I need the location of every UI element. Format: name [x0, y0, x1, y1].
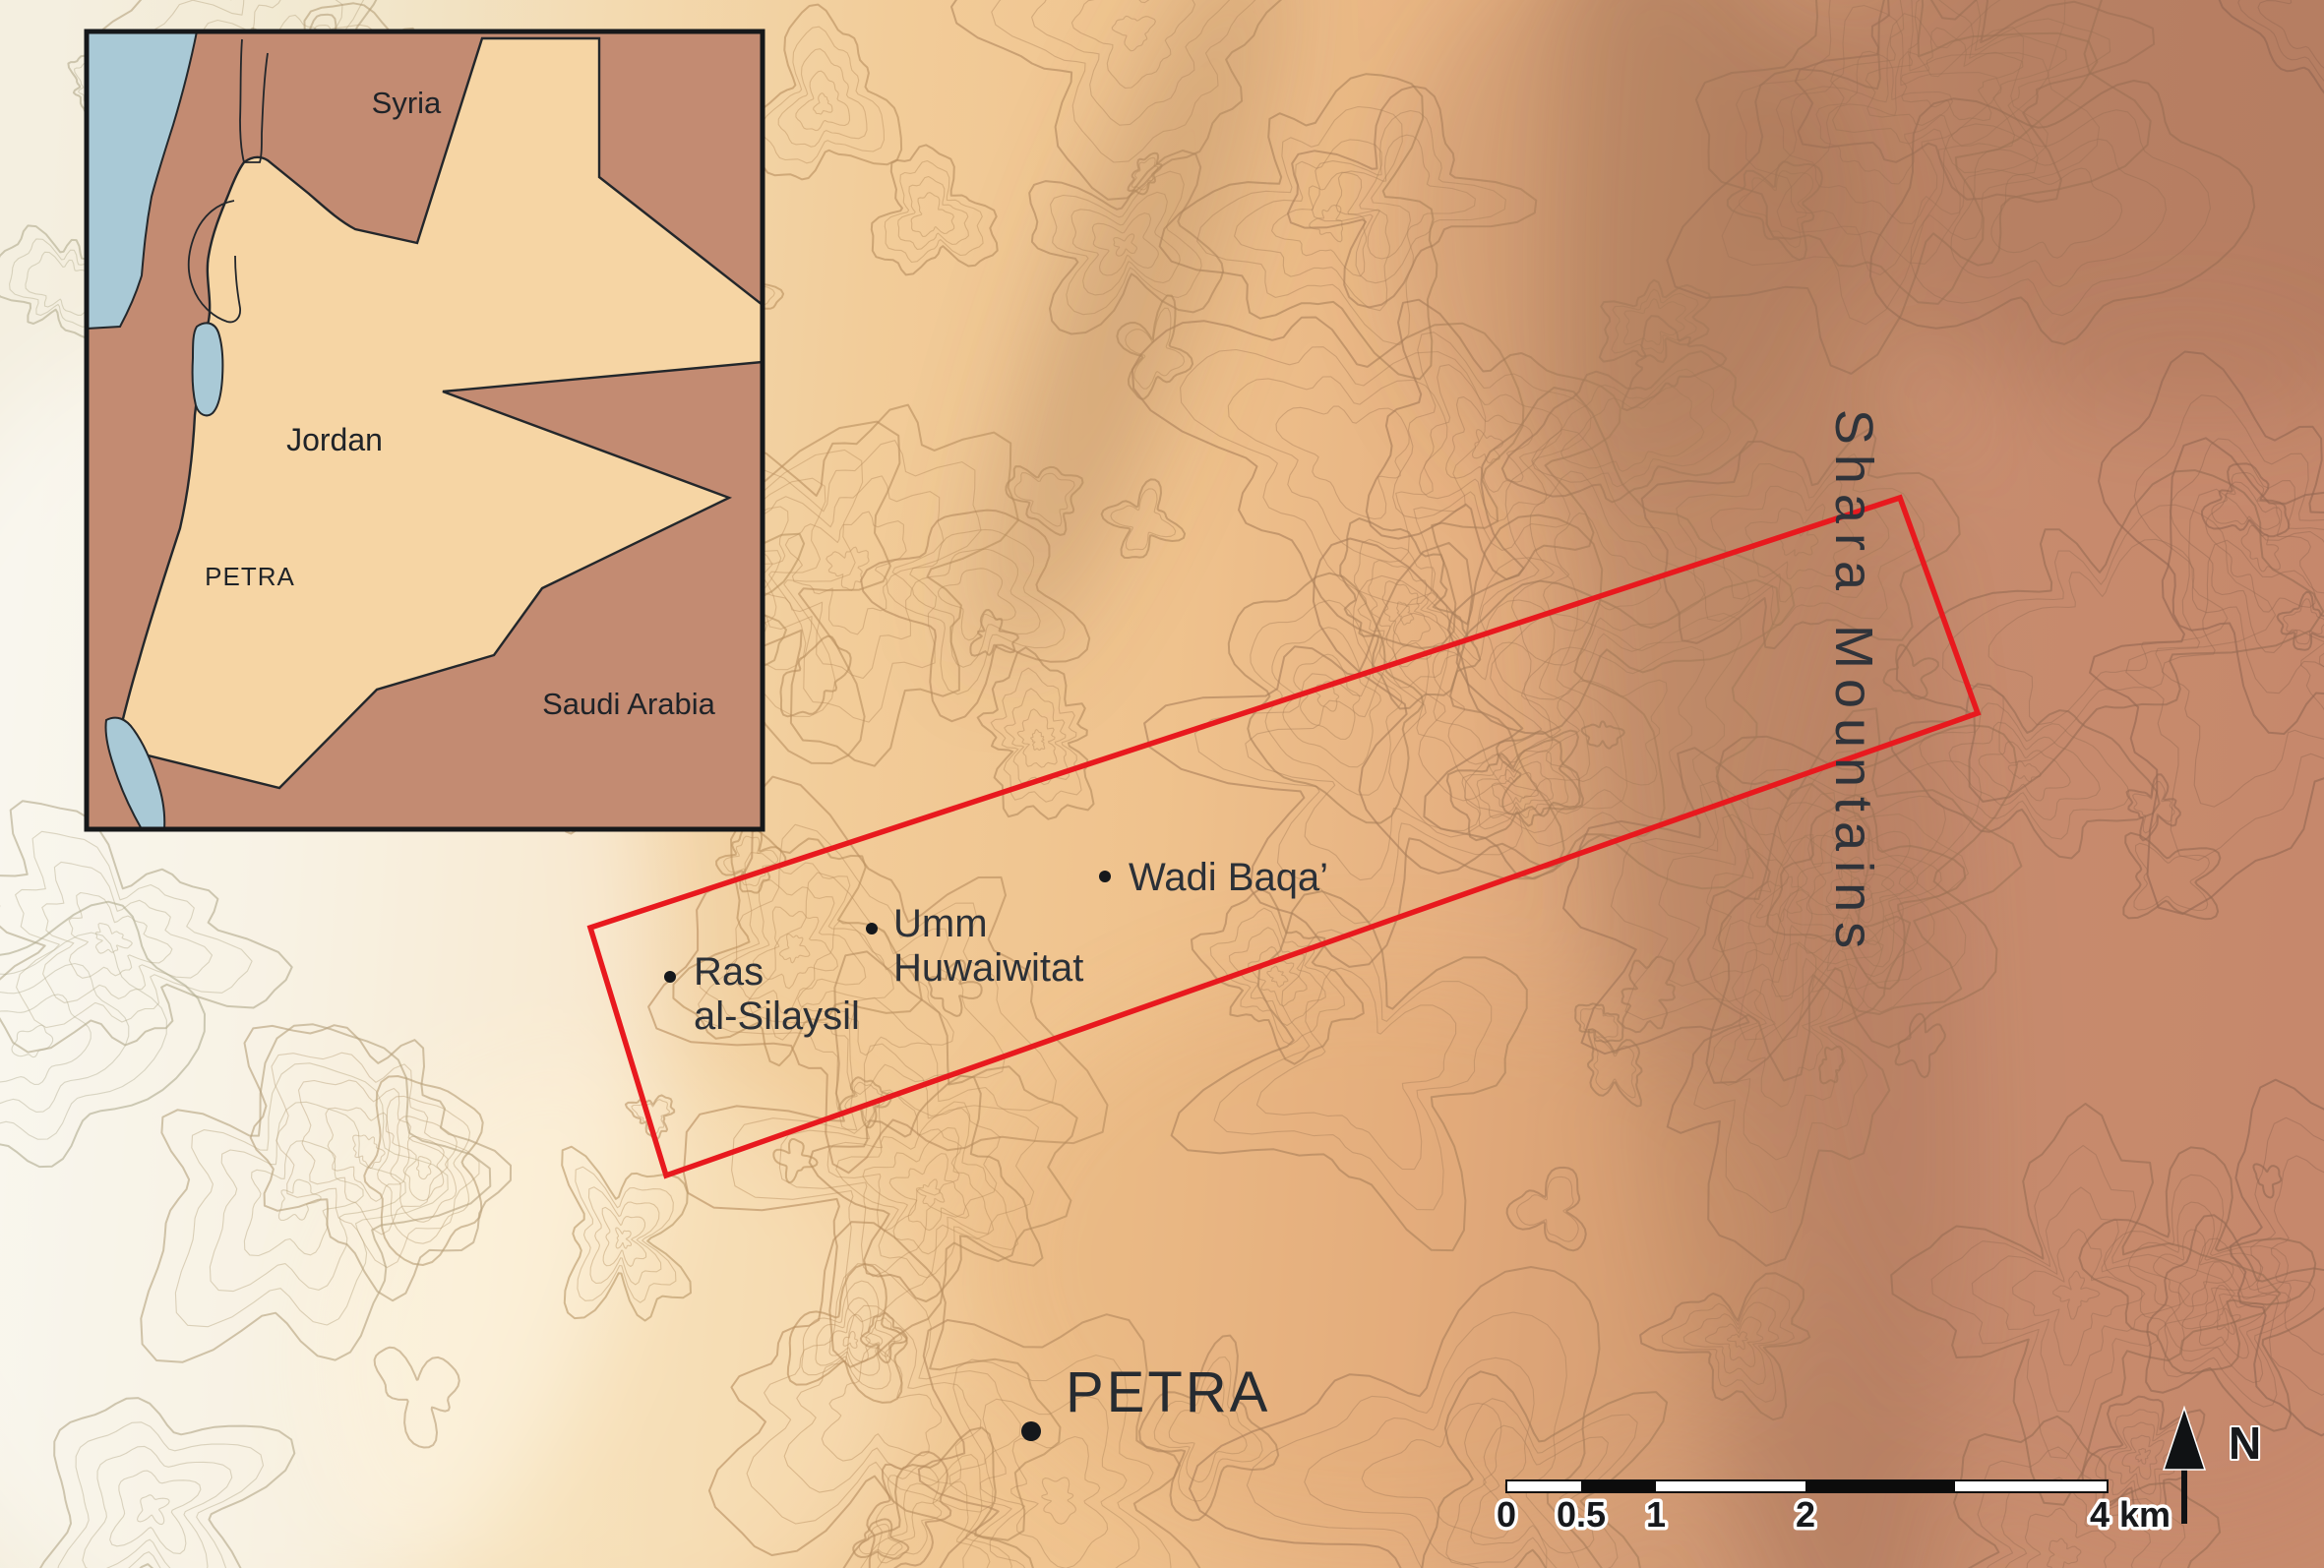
- shara-mountains-label: Shara Mountains: [1824, 409, 1883, 958]
- inset-label-petra: PETRA: [205, 562, 295, 591]
- site-dot: [1099, 871, 1111, 882]
- site-dot: [664, 971, 676, 983]
- site-label-line1: Ras: [694, 950, 764, 994]
- site-wadi-baqa: Wadi Baqa’: [1099, 856, 1328, 899]
- inset-label-jordan: Jordan: [286, 422, 383, 457]
- scale-tick-4km: 4 km: [2090, 1494, 2171, 1535]
- scale-tick-2: 2: [1796, 1494, 1815, 1535]
- scale-bar-segment-dark-1: [1581, 1480, 1656, 1492]
- petra-dot: [1021, 1421, 1041, 1441]
- site-label-line2: Huwaiwitat: [893, 946, 1083, 990]
- site-label-line1: Umm: [893, 902, 988, 945]
- inset-map: Syria Jordan PETRA Saudi Arabia: [87, 31, 763, 829]
- scale-bar-segment-dark-2: [1805, 1480, 1955, 1492]
- inset-dead-sea: [193, 323, 223, 415]
- map-canvas: Shara Mountains Wadi Baqa’ Umm Huwaiwita…: [0, 0, 2324, 1568]
- scale-tick-0: 0: [1497, 1494, 1516, 1535]
- petra-label: PETRA: [1066, 1360, 1270, 1424]
- site-dot: [866, 923, 878, 935]
- site-label: Wadi Baqa’: [1129, 856, 1328, 899]
- scale-tick-1: 1: [1646, 1494, 1666, 1535]
- north-arrow-label: N: [2229, 1417, 2261, 1469]
- inset-label-saudi-arabia: Saudi Arabia: [542, 687, 716, 721]
- inset-label-syria: Syria: [372, 86, 442, 120]
- site-label-line2: al-Silaysil: [694, 995, 860, 1038]
- scale-tick-05: 0.5: [1557, 1494, 1606, 1535]
